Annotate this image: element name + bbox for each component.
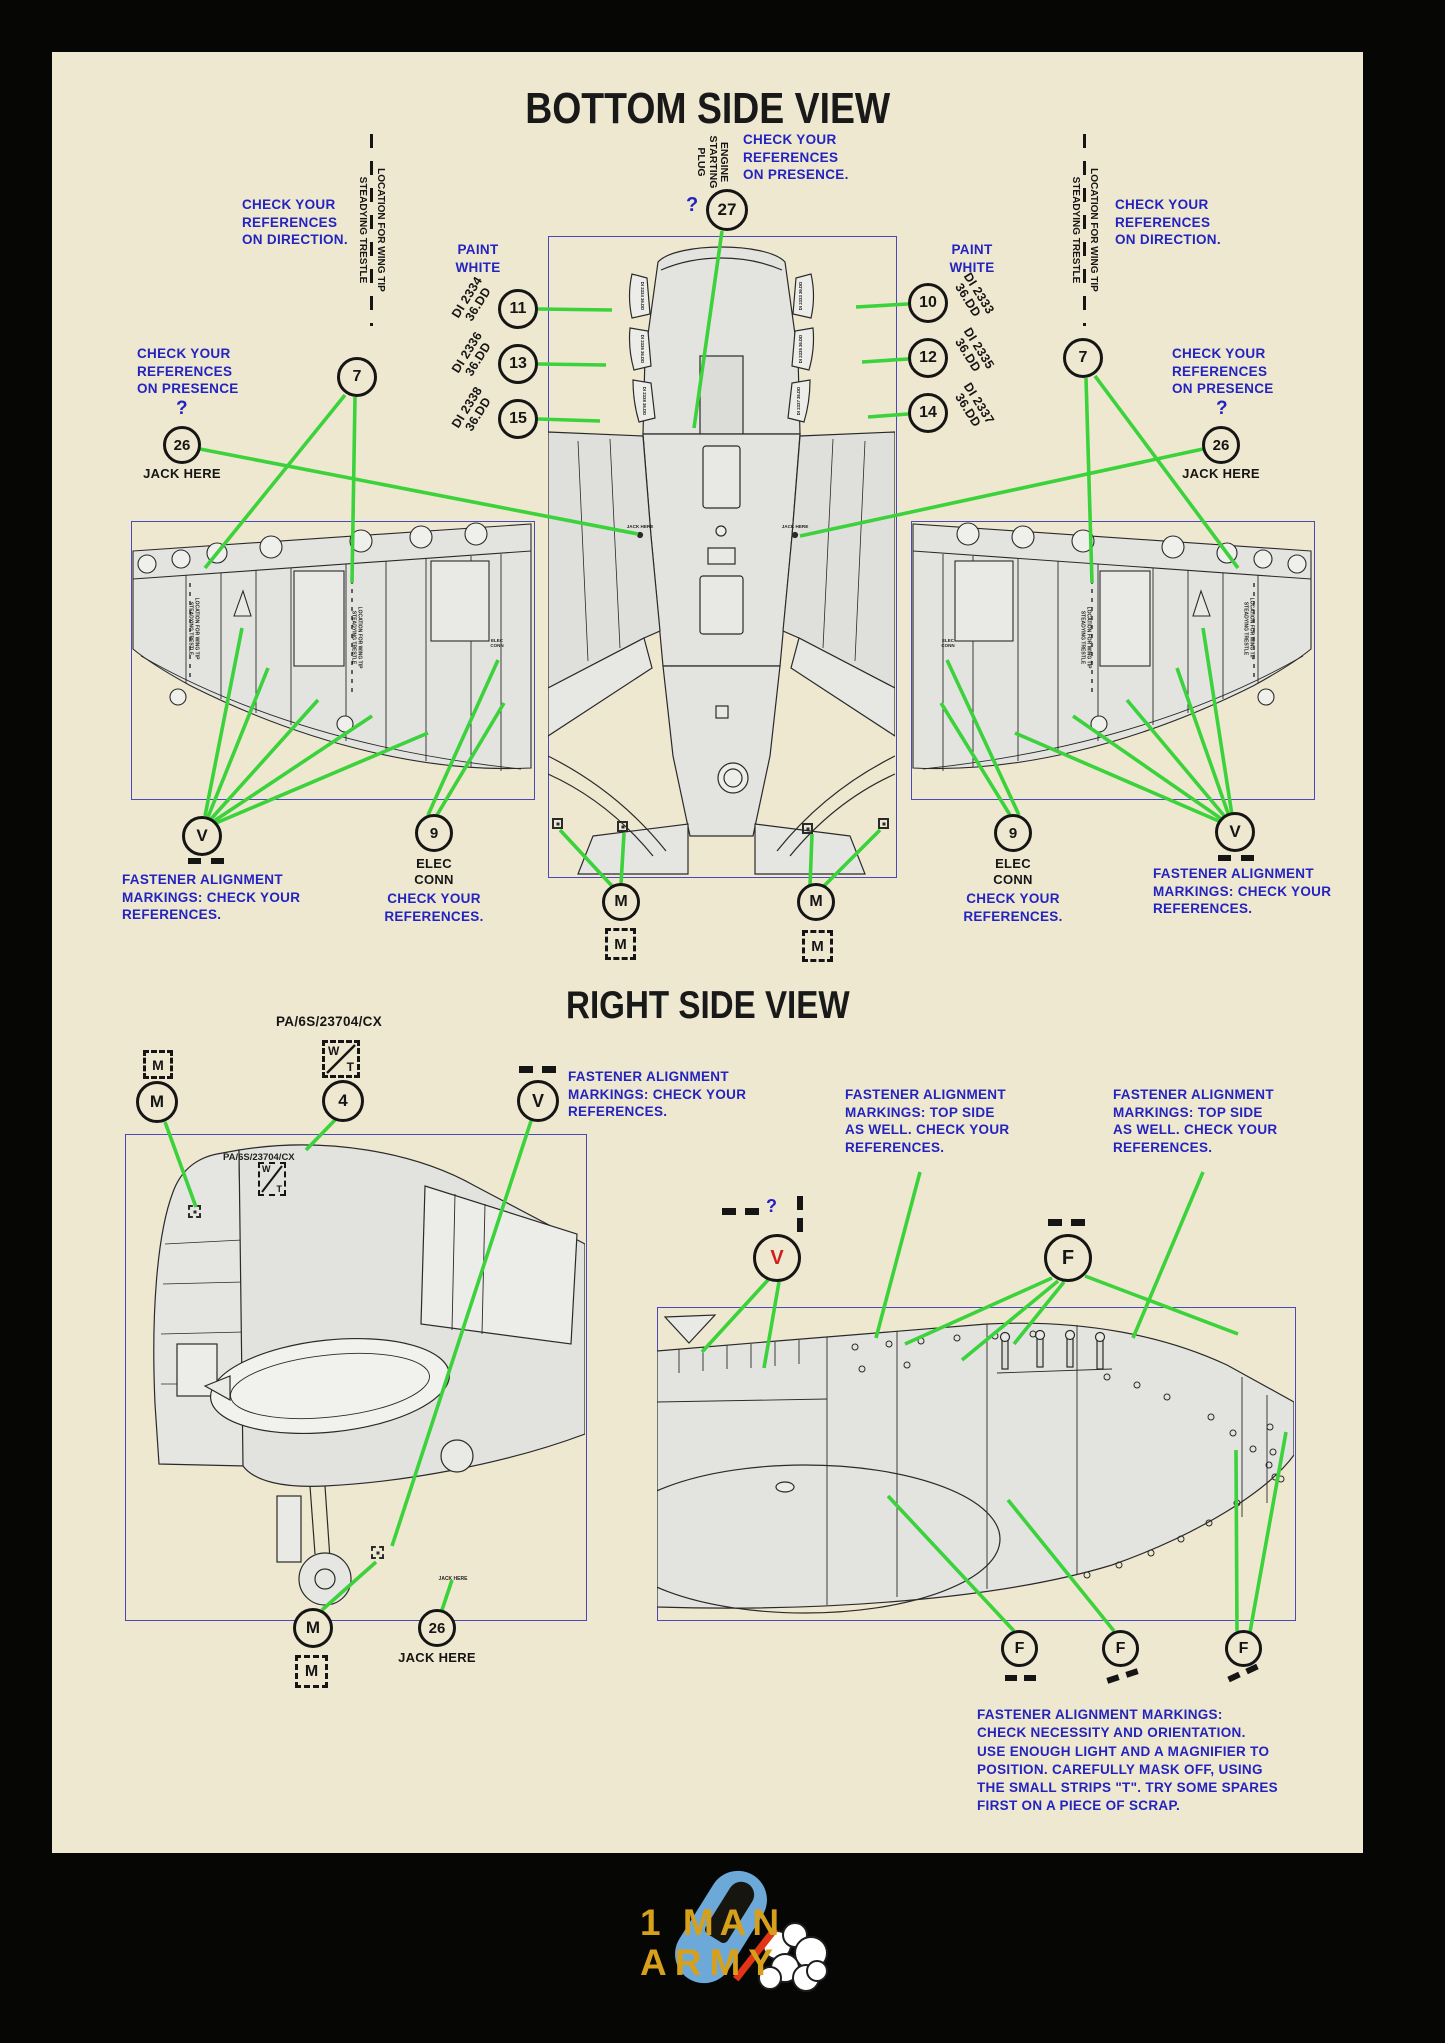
logo-line1: 1 MAN xyxy=(640,1902,785,1944)
stencil-di2338: DI 2338 36.DD xyxy=(642,387,647,415)
wt-w: W xyxy=(328,1044,339,1058)
elec-conn-micro-left: ELEC CONN xyxy=(486,638,508,648)
stencil-di2335: DI 2335 36.DD xyxy=(798,335,803,363)
question-mark-fuselage: ? xyxy=(766,1198,777,1216)
note-direction-right: CHECK YOUR REFERENCES ON DIRECTION. xyxy=(1115,196,1221,249)
logo-line2: ARMY xyxy=(640,1942,781,1984)
callout-15: 15 xyxy=(498,399,538,439)
stencil-di2337: DI 2337 36.DD xyxy=(796,387,801,415)
note-topside-right: FASTENER ALIGNMENT MARKINGS: TOP SIDE AS… xyxy=(1113,1086,1277,1156)
trestle-micro-left-1: LOCATION FOR WING TIPSTEADYING TRESTLE xyxy=(188,574,201,684)
elec-conn-left: ELEC CONN xyxy=(404,856,464,888)
note-direction-left: CHECK YOUR REFERENCES ON DIRECTION. xyxy=(242,196,348,249)
fastener-square xyxy=(188,1205,201,1218)
question-mark-left: ? xyxy=(176,400,188,418)
m-stencil-box-right: M xyxy=(802,930,833,962)
wt-t: T xyxy=(347,1060,354,1074)
callout-4: 4 xyxy=(322,1080,364,1122)
alignment-dash xyxy=(542,1066,556,1073)
callout-v-left: V xyxy=(182,816,222,856)
fastener-square xyxy=(552,818,563,829)
callout-11: 11 xyxy=(498,289,538,329)
callout-f-2: F xyxy=(1102,1630,1139,1667)
elec-conn-micro-right: ELEC CONN xyxy=(937,638,959,648)
stencil-di2333: DI 2333 36.DD xyxy=(798,282,803,310)
alignment-dash xyxy=(1071,1219,1085,1226)
trestle-line1: LOCATION FOR WING TIP xyxy=(376,168,387,292)
bottom-view-drawing: DI 2334 36.DD DI 2336 36.DD DI 2338 36.D… xyxy=(548,236,895,876)
elec-conn-right: ELEC CONN xyxy=(983,856,1043,888)
note-fastener-v-top: FASTENER ALIGNMENT MARKINGS: CHECK YOUR … xyxy=(568,1068,746,1121)
jack-here-bottom: JACK HERE xyxy=(387,1650,487,1666)
callout-v-top: V xyxy=(517,1080,559,1122)
jack-here-right: JACK HERE xyxy=(1171,466,1271,482)
logo-cloud xyxy=(806,1960,828,1982)
note-fastener-right: FASTENER ALIGNMENT MARKINGS: CHECK YOUR … xyxy=(1153,865,1331,918)
fastener-square xyxy=(617,821,628,832)
engine-starting-plug-label: ENGINE STARTING PLUG xyxy=(695,136,730,189)
alignment-dash xyxy=(1005,1675,1017,1681)
alignment-dash xyxy=(745,1208,759,1215)
callout-f-1: F xyxy=(1001,1630,1038,1667)
wt-stencil-box: W T xyxy=(322,1040,360,1078)
jack-here-micro-left: JACK HERE xyxy=(627,524,654,529)
fuselage-view-drawing xyxy=(657,1307,1294,1619)
callout-14: 14 xyxy=(908,393,948,433)
alignment-dash xyxy=(211,858,224,864)
alignment-dash xyxy=(188,858,201,864)
bottom-view-title: BOTTOM SIDE VIEW xyxy=(52,84,1363,134)
question-mark-27: ? xyxy=(686,197,699,215)
m-stencil-box-bottom: M xyxy=(295,1655,328,1688)
trestle-annotation-right: LOCATION FOR WING TIP STEADYING TRESTLE xyxy=(1068,130,1102,330)
trestle-micro-right-2: LOCATION FOR WING TIPSTEADYING TRESTLE xyxy=(1080,583,1093,693)
callout-7-left: 7 xyxy=(337,357,377,397)
fastener-square xyxy=(878,818,889,829)
stencil-di2334: DI 2334 36.DD xyxy=(640,282,645,310)
alignment-dash xyxy=(519,1066,533,1073)
note-topside-left: FASTENER ALIGNMENT MARKINGS: TOP SIDE AS… xyxy=(845,1086,1009,1156)
note-fastener-paragraph: FASTENER ALIGNMENT MARKINGS: CHECK NECES… xyxy=(977,1706,1278,1816)
m-stencil-box-top: M xyxy=(143,1050,173,1079)
m-stencil-box-left: M xyxy=(605,928,636,960)
right-view-title: RIGHT SIDE VIEW xyxy=(52,984,1363,1028)
wt-stencil-box-drawing: W T xyxy=(258,1162,286,1196)
callout-m-bottom: M xyxy=(293,1608,333,1648)
note-fastener-left: FASTENER ALIGNMENT MARKINGS: CHECK YOUR … xyxy=(122,871,300,924)
note-presence-left: CHECK YOUR REFERENCES ON PRESENCE xyxy=(137,345,239,398)
fastener-square xyxy=(802,823,813,834)
callout-7-right: 7 xyxy=(1063,338,1103,378)
alignment-dash xyxy=(1024,1675,1036,1681)
callout-f-3: F xyxy=(1225,1630,1262,1667)
trestle-micro-right-1: LOCATION FOR WING TIPSTEADYING TRESTLE xyxy=(1243,574,1256,684)
callout-9-right: 9 xyxy=(994,814,1032,852)
trestle-dashed-line xyxy=(371,134,374,326)
question-mark-right: ? xyxy=(1216,400,1228,418)
alignment-dash xyxy=(1048,1219,1062,1226)
alignment-dash xyxy=(1241,855,1254,861)
callout-v-right: V xyxy=(1215,812,1255,852)
jack-here-micro-right: JACK HERE xyxy=(782,524,809,529)
callout-26-bottom: 26 xyxy=(418,1609,456,1647)
callout-27: 27 xyxy=(706,189,748,231)
note-presence-right: CHECK YOUR REFERENCES ON PRESENCE xyxy=(1172,345,1274,398)
trestle-annotation-left: LOCATION FOR WING TIP STEADYING TRESTLE xyxy=(355,130,389,330)
instruction-sheet: BOTTOM SIDE VIEW RIGHT SIDE VIEW xyxy=(0,0,1445,2043)
stencil-di2336: DI 2336 36.DD xyxy=(640,335,645,363)
note-check-refs-left: CHECK YOUR REFERENCES. xyxy=(384,890,484,925)
jack-here-left: JACK HERE xyxy=(132,466,232,482)
callout-12: 12 xyxy=(908,338,948,378)
trestle-micro-left-2: LOCATION FOR WING TIPSTEADYING TRESTLE xyxy=(351,583,364,693)
jack-here-micro-tail: JACK HERE xyxy=(425,1576,481,1582)
alignment-dash xyxy=(722,1208,736,1215)
alignment-dash-vertical xyxy=(797,1196,803,1210)
callout-13: 13 xyxy=(498,344,538,384)
note-check-refs-right: CHECK YOUR REFERENCES. xyxy=(963,890,1063,925)
callout-10: 10 xyxy=(908,283,948,323)
brand-logo: 1 MAN ARMY xyxy=(600,1856,860,2016)
callout-26-left: 26 xyxy=(163,426,201,464)
callout-26-right: 26 xyxy=(1202,426,1240,464)
callout-v-red: V xyxy=(753,1234,801,1282)
pa-code-label: PA/6S/23704/CX xyxy=(276,1014,382,1030)
fastener-square xyxy=(371,1546,384,1559)
callout-m-left: M xyxy=(602,883,640,921)
trestle-line2: STEADYING TRESTLE xyxy=(358,177,369,284)
callout-m-right: M xyxy=(797,883,835,921)
note-presence-top: CHECK YOUR REFERENCES ON PRESENCE. xyxy=(743,131,849,184)
callout-m-top: M xyxy=(136,1081,178,1123)
callout-9-left: 9 xyxy=(415,814,453,852)
alignment-dash-vertical xyxy=(797,1218,803,1232)
callout-f-top: F xyxy=(1044,1234,1092,1282)
alignment-dash xyxy=(1218,855,1231,861)
